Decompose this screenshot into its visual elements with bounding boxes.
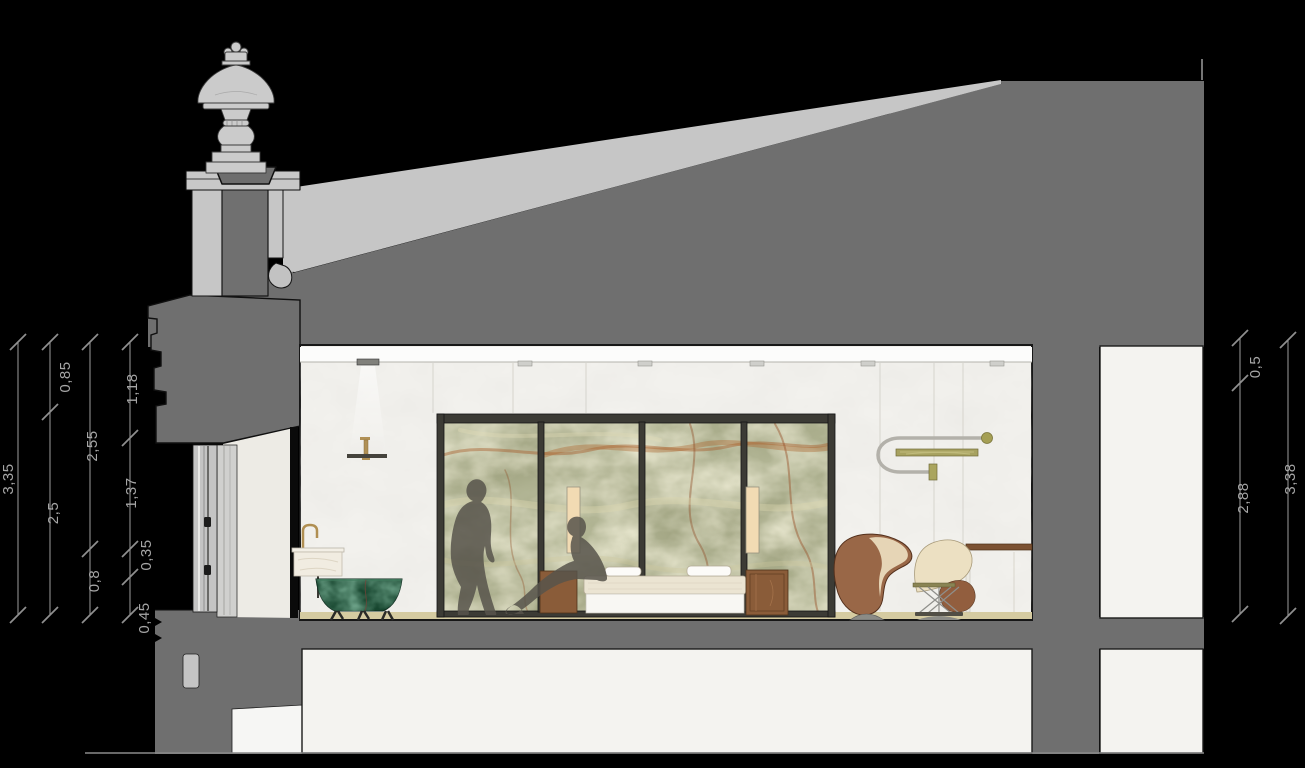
dim-label-0-85: 0,85 [57, 361, 74, 392]
pillow [687, 566, 731, 576]
main-suite-room [292, 345, 1032, 620]
left-facade-cornice-cut [148, 295, 300, 443]
floor-slab-cut [155, 617, 1204, 649]
nightstand-right [746, 570, 788, 615]
lower-floor-window-reveal [232, 705, 302, 753]
ceiling-downlight [357, 359, 379, 365]
chimney-left-face [192, 186, 225, 296]
stair-shaft-upper [1100, 346, 1203, 618]
window-handle-lower [204, 565, 211, 575]
bed-base [586, 594, 744, 613]
dim-label-3-38: 3,38 [1282, 463, 1299, 494]
dim-label-0-5: 0,5 [1247, 356, 1264, 378]
curtain-pocket-slot [290, 427, 298, 618]
dim-label-2-88: 2,88 [1235, 482, 1252, 513]
dim-label-0-8: 0,8 [86, 570, 103, 592]
window-handle-upper [204, 517, 211, 527]
window-sash [193, 445, 217, 612]
section-drawing-canvas: 3,35 0,85 2,5 2,55 0,8 1,18 1,37 0,35 0,… [0, 0, 1305, 768]
dim-label-0-45: 0,45 [136, 602, 153, 633]
stair-shaft-lower [1100, 649, 1203, 753]
dim-label-1-18: 1,18 [124, 373, 141, 404]
dim-label-1-37: 1,37 [123, 477, 140, 508]
desk-top [966, 544, 1032, 550]
building-cross-section: 3,35 0,85 2,5 2,55 0,8 1,18 1,37 0,35 0,… [0, 0, 1305, 768]
marble-counter [292, 548, 344, 552]
ceiling-band [300, 347, 1032, 362]
sill-apron-panel [183, 654, 199, 688]
chimney-flue-cut [222, 184, 268, 296]
dim-label-3-35: 3,35 [0, 463, 17, 494]
party-wall-cut [1032, 345, 1099, 755]
chimney-right-face [268, 186, 283, 258]
lower-floor-room [302, 649, 1032, 753]
window-jamb [217, 445, 237, 617]
mattress [584, 576, 746, 594]
fixture-knob [982, 433, 993, 444]
fixture-bracket [929, 464, 937, 480]
dim-label-0-35: 0,35 [138, 539, 155, 570]
wall-sconce-right [746, 487, 759, 553]
pillow-second [605, 567, 641, 576]
dim-label-2-5: 2,5 [45, 502, 62, 524]
sink-basin [294, 552, 342, 576]
ground-mass [0, 754, 1305, 768]
dim-label-2-55: 2,55 [84, 430, 101, 461]
